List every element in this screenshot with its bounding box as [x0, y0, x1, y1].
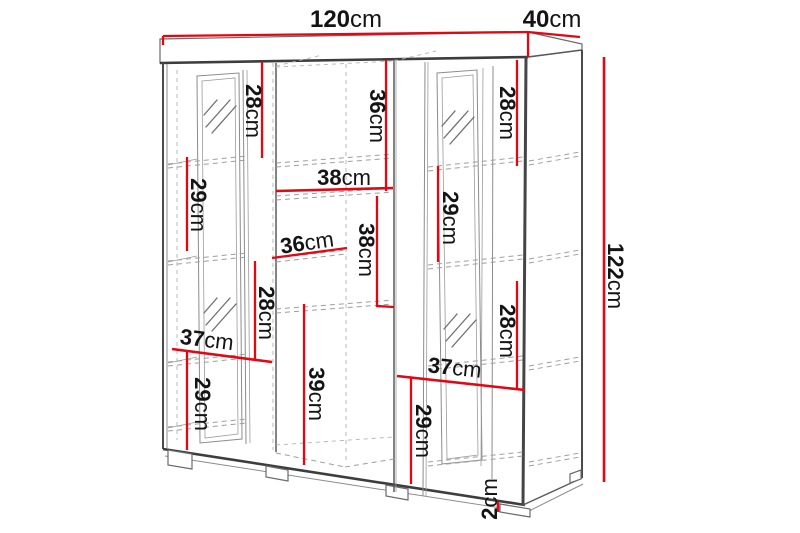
- dim-label-right-top: 28cm: [495, 86, 520, 140]
- dim-label-middle-width: 38cm: [317, 165, 371, 190]
- dim-label-overall-height: 122cm: [603, 243, 628, 309]
- side-panel-shelf-lines: [529, 152, 580, 466]
- dim-label-left-top: 28cm: [241, 84, 266, 138]
- dim-label-right-width: 37cm: [427, 352, 483, 382]
- dim-label-left-second: 29cm: [186, 178, 211, 232]
- dim-label-middle-bottom: 39cm: [304, 367, 329, 421]
- dim-label-top-width: 120cm: [310, 6, 382, 33]
- dim-label-right-bottom: 29cm: [411, 404, 436, 458]
- dim-label-left-third: 28cm: [254, 286, 279, 340]
- dimension-diagram: 120cm 40cm 122cm 28cm 36cm 28cm 29cm 29c…: [0, 0, 800, 533]
- cabinet-top-slab: [160, 32, 582, 63]
- dim-label-right-third: 28cm: [495, 304, 520, 358]
- cabinet-dimension-drawing: 120cm 40cm 122cm 28cm 36cm 28cm 29cm 29c…: [0, 0, 800, 533]
- dim-label-shelf-depth: 36cm: [279, 226, 336, 258]
- dim-label-foot-height: 2cm: [477, 478, 502, 520]
- dim-label-left-bottom: 29cm: [190, 377, 215, 431]
- dim-label-middle-section: 38cm: [354, 223, 379, 277]
- dim-label-middle-top: 36cm: [365, 89, 390, 143]
- dim-label-top-depth: 40cm: [523, 6, 582, 33]
- dim-label-right-second: 29cm: [438, 191, 463, 245]
